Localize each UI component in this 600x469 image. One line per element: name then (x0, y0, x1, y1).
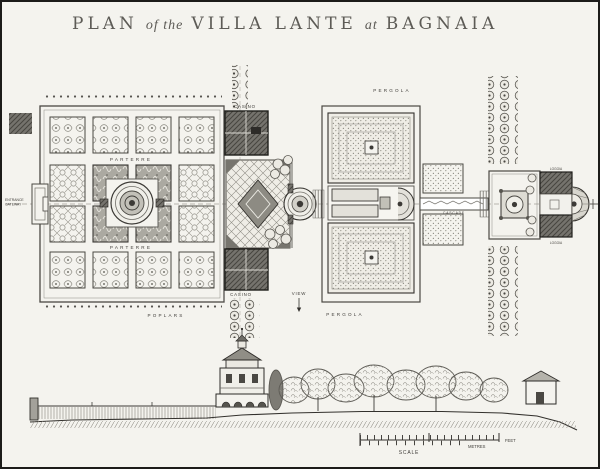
bosquet-upper (328, 113, 414, 183)
parterre-lower-label: PARTERRE (110, 245, 152, 250)
section-house (523, 371, 559, 404)
loggia-court (540, 194, 572, 215)
avenue-trees-lower (488, 246, 518, 336)
outbuilding (9, 113, 32, 134)
casino-terrace: CASINO (224, 65, 324, 338)
casino-upper-building (225, 111, 268, 155)
section-casino (216, 328, 268, 407)
loggia-lower-building (540, 215, 572, 237)
metres-label: METRES (468, 444, 486, 449)
view-arrow (297, 298, 301, 312)
plan-drawing: PARTERRE (2, 2, 600, 469)
section-trees (269, 365, 508, 411)
parterre-garden: PARTERRE (40, 95, 224, 318)
engraving-page: PLAN of the VILLA LANTE at BAGNAIA (0, 0, 600, 469)
bosquet-terrace: PERGOLA PERGOLA (322, 88, 420, 317)
feet-label: FEET (505, 438, 516, 443)
scale-bar: FEET METRES SCALE (360, 433, 516, 456)
entrance-label-line1: ENTRANCE (5, 198, 24, 202)
cascade-terrace: CASCADE (420, 164, 489, 245)
pergola-upper-label: PERGOLA (373, 88, 411, 93)
apse-fountain (571, 187, 599, 221)
poplars-label: POPLARS (147, 313, 184, 318)
casino-upper-label: CASINO (234, 104, 256, 109)
casino-lower-building (225, 249, 268, 290)
tree-row-bottom (44, 305, 222, 312)
loggia-upper-building (540, 172, 572, 194)
round-fountain (284, 184, 316, 224)
parterre-beds-top-row (50, 117, 214, 153)
tree-column-bottom (230, 298, 260, 338)
view-label: VIEW (292, 291, 306, 296)
stairs-terrace3 (480, 191, 489, 217)
tree-column-top (232, 65, 248, 109)
tree-row-top (44, 95, 222, 102)
bosquet-lower (328, 223, 414, 293)
entrance-label-line2: GATEWAY (5, 203, 22, 207)
casino-lower-label: CASINO (230, 292, 252, 297)
loggia-lower-label: LOGGIA (550, 241, 563, 245)
scale-label: SCALE (399, 450, 419, 456)
parterre-upper-label: PARTERRE (110, 157, 152, 162)
water-parterre (328, 186, 414, 220)
pergola-lower-label: PERGOLA (326, 312, 364, 317)
section-wall (30, 398, 216, 420)
avenue-trees-upper (488, 76, 518, 164)
parterre-beds-bottom-row (50, 252, 214, 288)
section-elevation (30, 328, 577, 430)
circular-fountain-parterre (100, 179, 164, 227)
ground-hatch (30, 421, 576, 428)
cascade-label: CASCADE (443, 211, 465, 215)
loggia-upper-label: LOGGIA (550, 167, 563, 171)
